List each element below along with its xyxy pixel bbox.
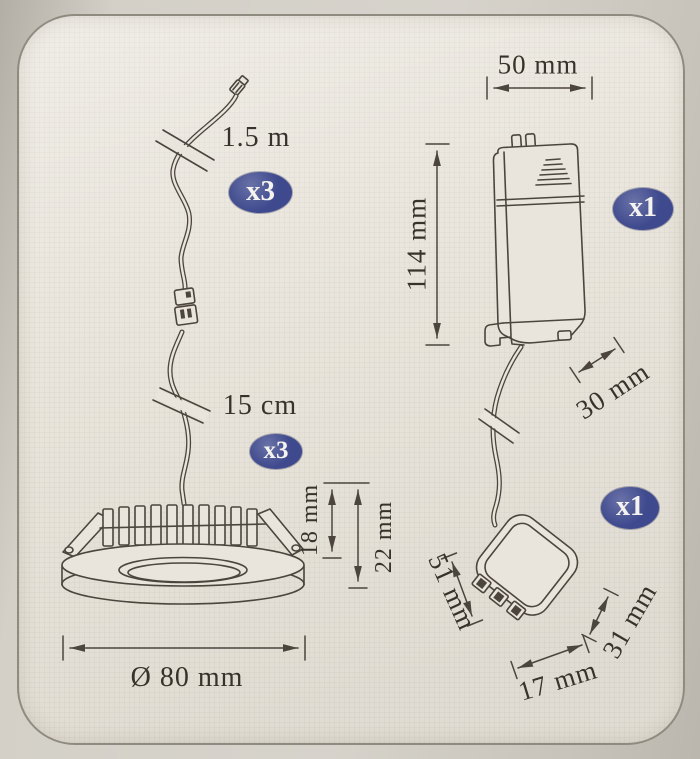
packaging-photo: { "colors": { "page_bg": "#cfcbc2", "car… <box>0 0 700 759</box>
dim-50mm-lines <box>487 77 592 99</box>
cable-length-label: 1.5 m <box>222 124 291 152</box>
dim-18mm-lines <box>323 483 369 558</box>
fixture-qty-text: x3 <box>264 437 289 465</box>
diameter-label: Ø 80 mm <box>131 664 244 692</box>
driver-box-drawing <box>485 134 585 346</box>
driver-height-label: 114 mm <box>404 197 431 291</box>
recess-depth-label: 18 mm <box>298 484 322 556</box>
block-qty-text: x1 <box>616 491 644 523</box>
driver-qty-text: x1 <box>629 192 657 224</box>
distribution-block-drawing <box>464 508 585 630</box>
cable-qty-text: x3 <box>246 175 275 208</box>
driver-cable-drawing <box>479 347 521 525</box>
diagram-line-art <box>0 0 700 759</box>
dim-diameter-lines <box>63 636 305 660</box>
overall-depth-label: 22 mm <box>372 501 396 573</box>
driver-width-label: 50 mm <box>498 52 579 79</box>
downlight-fixture-drawing <box>62 505 304 604</box>
cable-qty-badge: x3 <box>229 172 292 213</box>
pigtail-length-label: 15 cm <box>223 392 297 420</box>
inline-connector-drawing <box>172 288 198 326</box>
driver-qty-badge: x1 <box>613 188 673 230</box>
block-qty-badge: x1 <box>601 487 659 529</box>
dim-22mm-lines <box>349 490 367 588</box>
fixture-qty-badge: x3 <box>250 434 302 469</box>
